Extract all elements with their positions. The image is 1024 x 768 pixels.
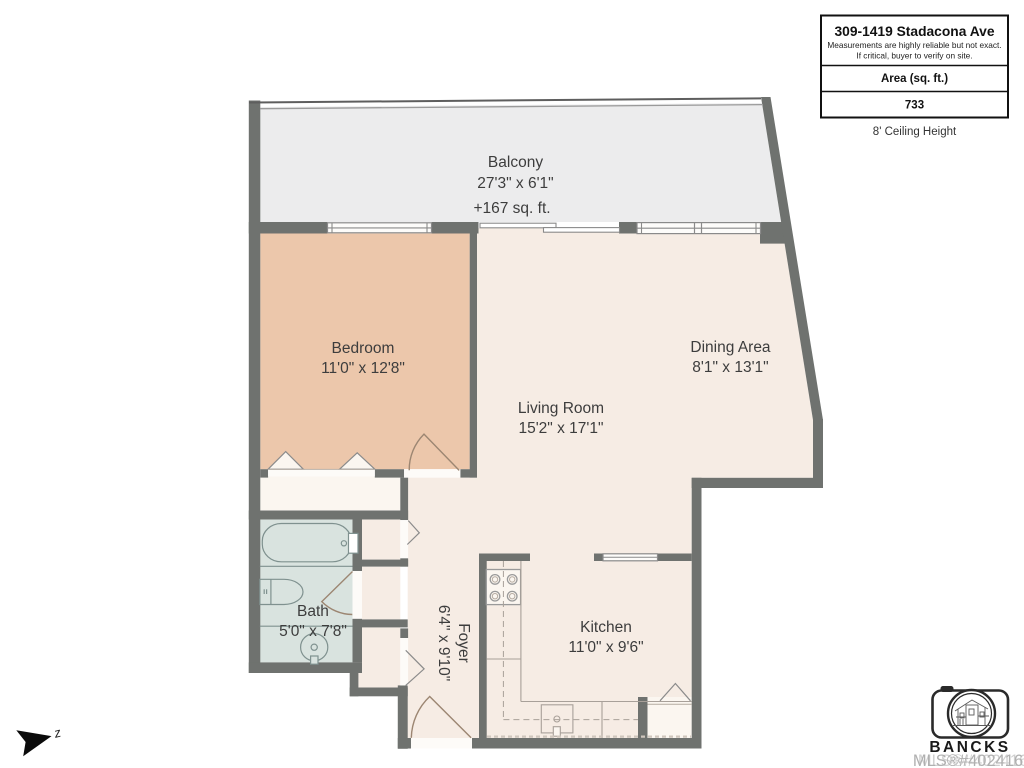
svg-text:5'0" x 7'8": 5'0" x 7'8" <box>279 623 347 640</box>
svg-text:Area (sq. ft.): Area (sq. ft.) <box>881 73 948 85</box>
svg-text:If critical, buyer to verify o: If critical, buyer to verify on site. <box>856 51 972 61</box>
svg-text:Dining Area: Dining Area <box>690 339 771 356</box>
svg-text:309-1419 Stadacona Ave: 309-1419 Stadacona Ave <box>834 24 994 39</box>
svg-text:Living Room: Living Room <box>518 400 604 417</box>
svg-text:+167 sq. ft.: +167 sq. ft. <box>473 200 550 217</box>
svg-text:Balcony: Balcony <box>488 154 543 171</box>
svg-text:Bath: Bath <box>297 603 329 620</box>
svg-text:MLS®#402416: MLS®#402416 <box>918 752 1024 768</box>
svg-text:15'2" x 17'1": 15'2" x 17'1" <box>518 420 603 437</box>
svg-text:11'0" x 12'8": 11'0" x 12'8" <box>321 360 405 377</box>
svg-text:Bedroom: Bedroom <box>332 340 395 357</box>
svg-text:Kitchen: Kitchen <box>580 619 632 636</box>
svg-text:6'4" x 9'10": 6'4" x 9'10" <box>435 605 452 681</box>
svg-text:8'1" x 13'1": 8'1" x 13'1" <box>692 359 768 376</box>
svg-text:Measurements are highly reliab: Measurements are highly reliable but not… <box>827 40 1001 50</box>
svg-text:11'0" x 9'6": 11'0" x 9'6" <box>568 639 643 656</box>
svg-text:Foyer: Foyer <box>455 623 472 663</box>
svg-text:8' Ceiling Height: 8' Ceiling Height <box>873 126 957 138</box>
svg-text:733: 733 <box>905 100 924 112</box>
svg-text:27'3" x 6'1": 27'3" x 6'1" <box>477 175 553 192</box>
